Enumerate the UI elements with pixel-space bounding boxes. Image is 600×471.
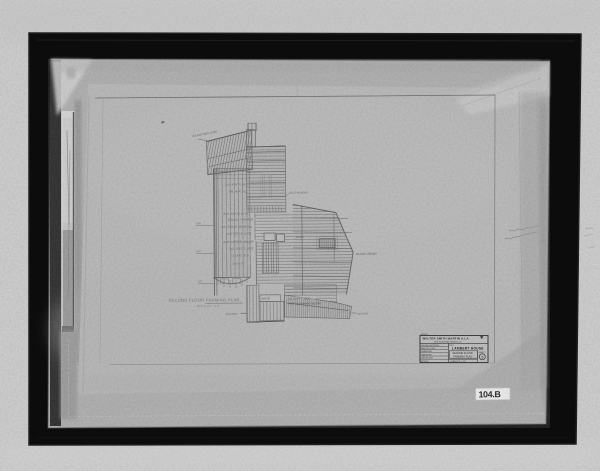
svg-text:OWNER: OWNER [420, 334, 428, 336]
svg-text:2x10 HEADER: 2x10 HEADER [291, 190, 308, 194]
svg-text:JOB 2040 ALTON RD: JOB 2040 ALTON RD [421, 344, 440, 347]
svg-text:PORCH FRAMING BELOW: PORCH FRAMING BELOW [288, 301, 321, 305]
svg-text:LAMBERT HOUSE: LAMBERT HOUSE [452, 346, 484, 350]
svg-text:10-0: 10-0 [196, 250, 201, 253]
svg-text:FRAMING PLAN: FRAMING PLAN [454, 355, 473, 358]
svg-text:SCALE 1/4" = 1-0": SCALE 1/4" = 1-0" [197, 304, 220, 308]
svg-text:6x6 POST: 6x6 POST [358, 312, 370, 315]
svg-text:12-6: 12-6 [196, 222, 201, 225]
svg-text:104.B: 104.B [478, 389, 500, 399]
svg-text:APPRVD: APPRVD [421, 360, 429, 363]
svg-text:TRACED EK: TRACED EK [421, 353, 433, 356]
svg-text:2x6 DK: 2x6 DK [261, 296, 270, 300]
svg-text:DATE JULY 1945: DATE JULY 1945 [421, 347, 436, 350]
svg-text:DRAWN WM: DRAWN WM [421, 350, 432, 353]
svg-text:2x8 JOISTS 16OC: 2x8 JOISTS 16OC [287, 297, 310, 301]
svg-text:WALTER SMITH MARTIN A.I.A.: WALTER SMITH MARTIN A.I.A. [423, 336, 470, 340]
svg-text:CHECKD WM: CHECKD WM [421, 358, 433, 360]
svg-text:PLANK CEDAR: PLANK CEDAR [356, 252, 376, 256]
svg-text:SECOND FLOOR FRAMING PLAN: SECOND FLOOR FRAMING PLAN [168, 297, 239, 302]
svg-text:SCALE 1/8" = 1-0": SCALE 1/8" = 1-0" [451, 360, 467, 363]
svg-text:4x4 POST: 4x4 POST [226, 312, 238, 316]
